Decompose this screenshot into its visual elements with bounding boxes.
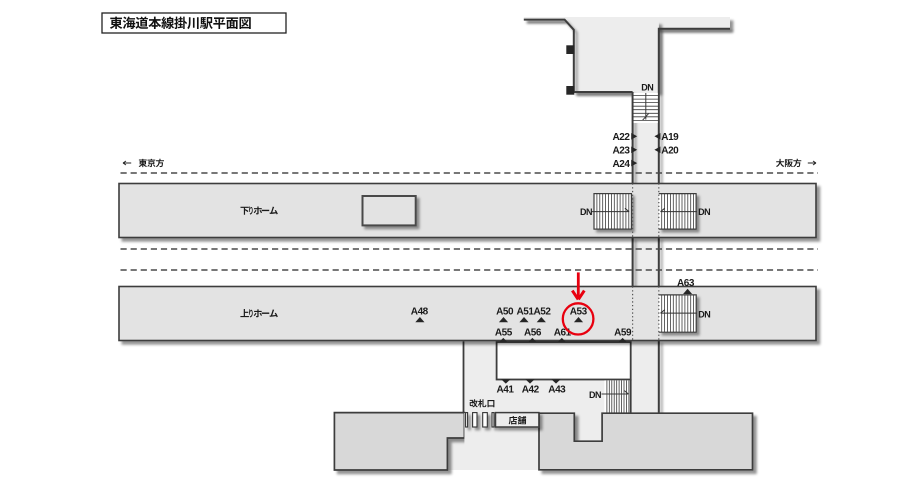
svg-text:A43: A43 (548, 385, 566, 396)
svg-text:DN: DN (698, 207, 710, 217)
svg-text:A51: A51 (517, 307, 535, 318)
svg-text:A56: A56 (524, 327, 542, 338)
svg-text:A41: A41 (497, 385, 515, 396)
svg-text:A24: A24 (613, 159, 631, 170)
svg-text:DN: DN (580, 207, 592, 217)
svg-text:A50: A50 (496, 307, 514, 318)
svg-text:A63: A63 (677, 278, 695, 289)
svg-text:A22: A22 (613, 132, 631, 143)
svg-text:DN: DN (641, 82, 653, 92)
svg-text:A53: A53 (570, 307, 588, 318)
svg-text:A42: A42 (522, 385, 540, 396)
svg-text:DN: DN (698, 309, 710, 319)
svg-text:A48: A48 (411, 307, 429, 318)
svg-text:A55: A55 (495, 327, 513, 338)
svg-text:A20: A20 (661, 146, 679, 157)
svg-text:A59: A59 (614, 327, 632, 338)
svg-text:A52: A52 (534, 307, 552, 318)
svg-text:A19: A19 (661, 132, 679, 143)
svg-text:A61: A61 (554, 327, 572, 338)
svg-text:DN: DN (589, 390, 601, 400)
svg-text:A23: A23 (613, 146, 631, 157)
